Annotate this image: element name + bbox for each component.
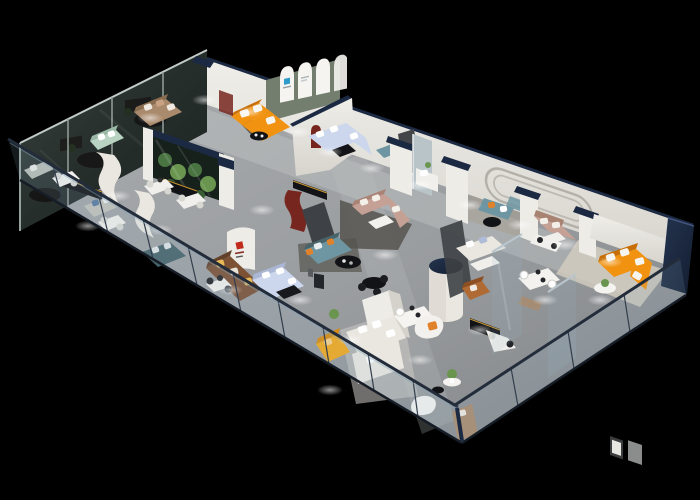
terrarium-end-post-left [143,127,153,182]
arch-room-coffee-table [250,132,268,141]
floorplan-render [0,0,700,500]
red-brand-logo [235,241,243,249]
round-black-table-1 [335,256,361,269]
tv-screen [314,273,324,289]
booth-black-table [483,217,501,227]
vip-table-plant [601,279,609,287]
terrace-plant [329,309,339,319]
arch-poster-blue-logo [284,78,290,85]
floorplan-render-image [0,0,700,500]
